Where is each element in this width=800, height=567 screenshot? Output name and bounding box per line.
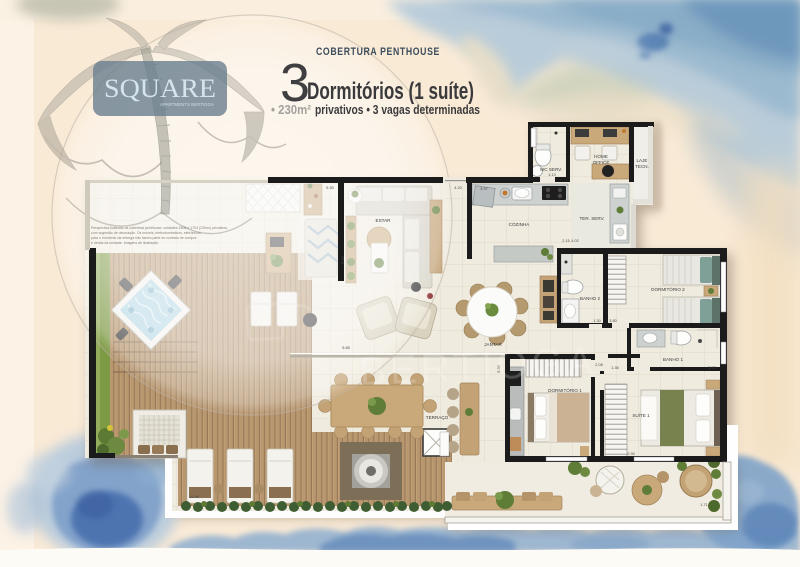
svg-text:Perspectiva ilustrada da cober: Perspectiva ilustrada da cobertura penth… xyxy=(91,226,228,230)
svg-text:1.13: 1.13 xyxy=(548,173,555,177)
svg-text:SQUARE: SQUARE xyxy=(104,74,216,103)
svg-text:• 230m²: • 230m² xyxy=(271,103,311,117)
svg-text:WC SERV.: WC SERV. xyxy=(540,167,562,172)
svg-text:ESTAR: ESTAR xyxy=(376,218,392,223)
svg-text:LAJE: LAJE xyxy=(637,158,648,163)
svg-text:privativos • 3 vagas determina: privativos • 3 vagas determinadas xyxy=(315,103,480,117)
svg-text:2.90: 2.90 xyxy=(627,452,634,456)
svg-text:Dormitórios (1 suíte): Dormitórios (1 suíte) xyxy=(307,78,474,105)
svg-text:1.30: 1.30 xyxy=(593,319,600,323)
svg-text:1.36: 1.36 xyxy=(611,366,618,370)
svg-text:1.71: 1.71 xyxy=(700,503,707,507)
svg-text:5.30: 5.30 xyxy=(341,256,345,263)
svg-text:2.15: 2.15 xyxy=(562,239,569,243)
svg-text:5.85: 5.85 xyxy=(342,346,349,350)
svg-text:BANHO 1: BANHO 1 xyxy=(663,357,684,362)
svg-text:TECN.: TECN. xyxy=(635,164,649,169)
svg-text:5.30: 5.30 xyxy=(326,186,333,190)
svg-text:COZINHA: COZINHA xyxy=(509,222,531,227)
svg-text:2.77: 2.77 xyxy=(708,366,715,370)
svg-text:TER. SERV.: TER. SERV. xyxy=(579,216,604,221)
svg-text:BANHO 2: BANHO 2 xyxy=(580,296,601,301)
svg-text:DORMITÓRIO 2: DORMITÓRIO 2 xyxy=(651,286,685,292)
svg-text:DORMITÓRIO 1: DORMITÓRIO 1 xyxy=(548,387,582,393)
svg-text:3.97: 3.97 xyxy=(480,187,487,191)
svg-text:16.96: 16.96 xyxy=(189,495,199,499)
svg-text:com sugestão de decoração. Os: com sugestão de decoração. Os móveis, el… xyxy=(91,231,201,235)
svg-text:SUÍTE 1: SUÍTE 1 xyxy=(632,412,650,418)
svg-text:HOME: HOME xyxy=(594,154,608,159)
svg-text:3.80: 3.80 xyxy=(609,319,616,323)
svg-text:TERRAÇO: TERRAÇO xyxy=(426,415,449,420)
svg-text:COBERTURA PENTHOUSE: COBERTURA PENTHOUSE xyxy=(316,46,440,58)
svg-text:4.20: 4.20 xyxy=(454,186,461,190)
svg-text:4.02: 4.02 xyxy=(571,239,578,243)
svg-text:para o momento da entrega não: para o momento da entrega não fazem part… xyxy=(91,236,197,240)
svg-text:OFFICE: OFFICE xyxy=(593,160,610,165)
svg-text:APARTMENTS BERTIOGA: APARTMENTS BERTIOGA xyxy=(160,102,214,107)
svg-text:e venda da unidade. Imagens de: e venda da unidade. Imagens de ilustraçã… xyxy=(91,241,159,245)
